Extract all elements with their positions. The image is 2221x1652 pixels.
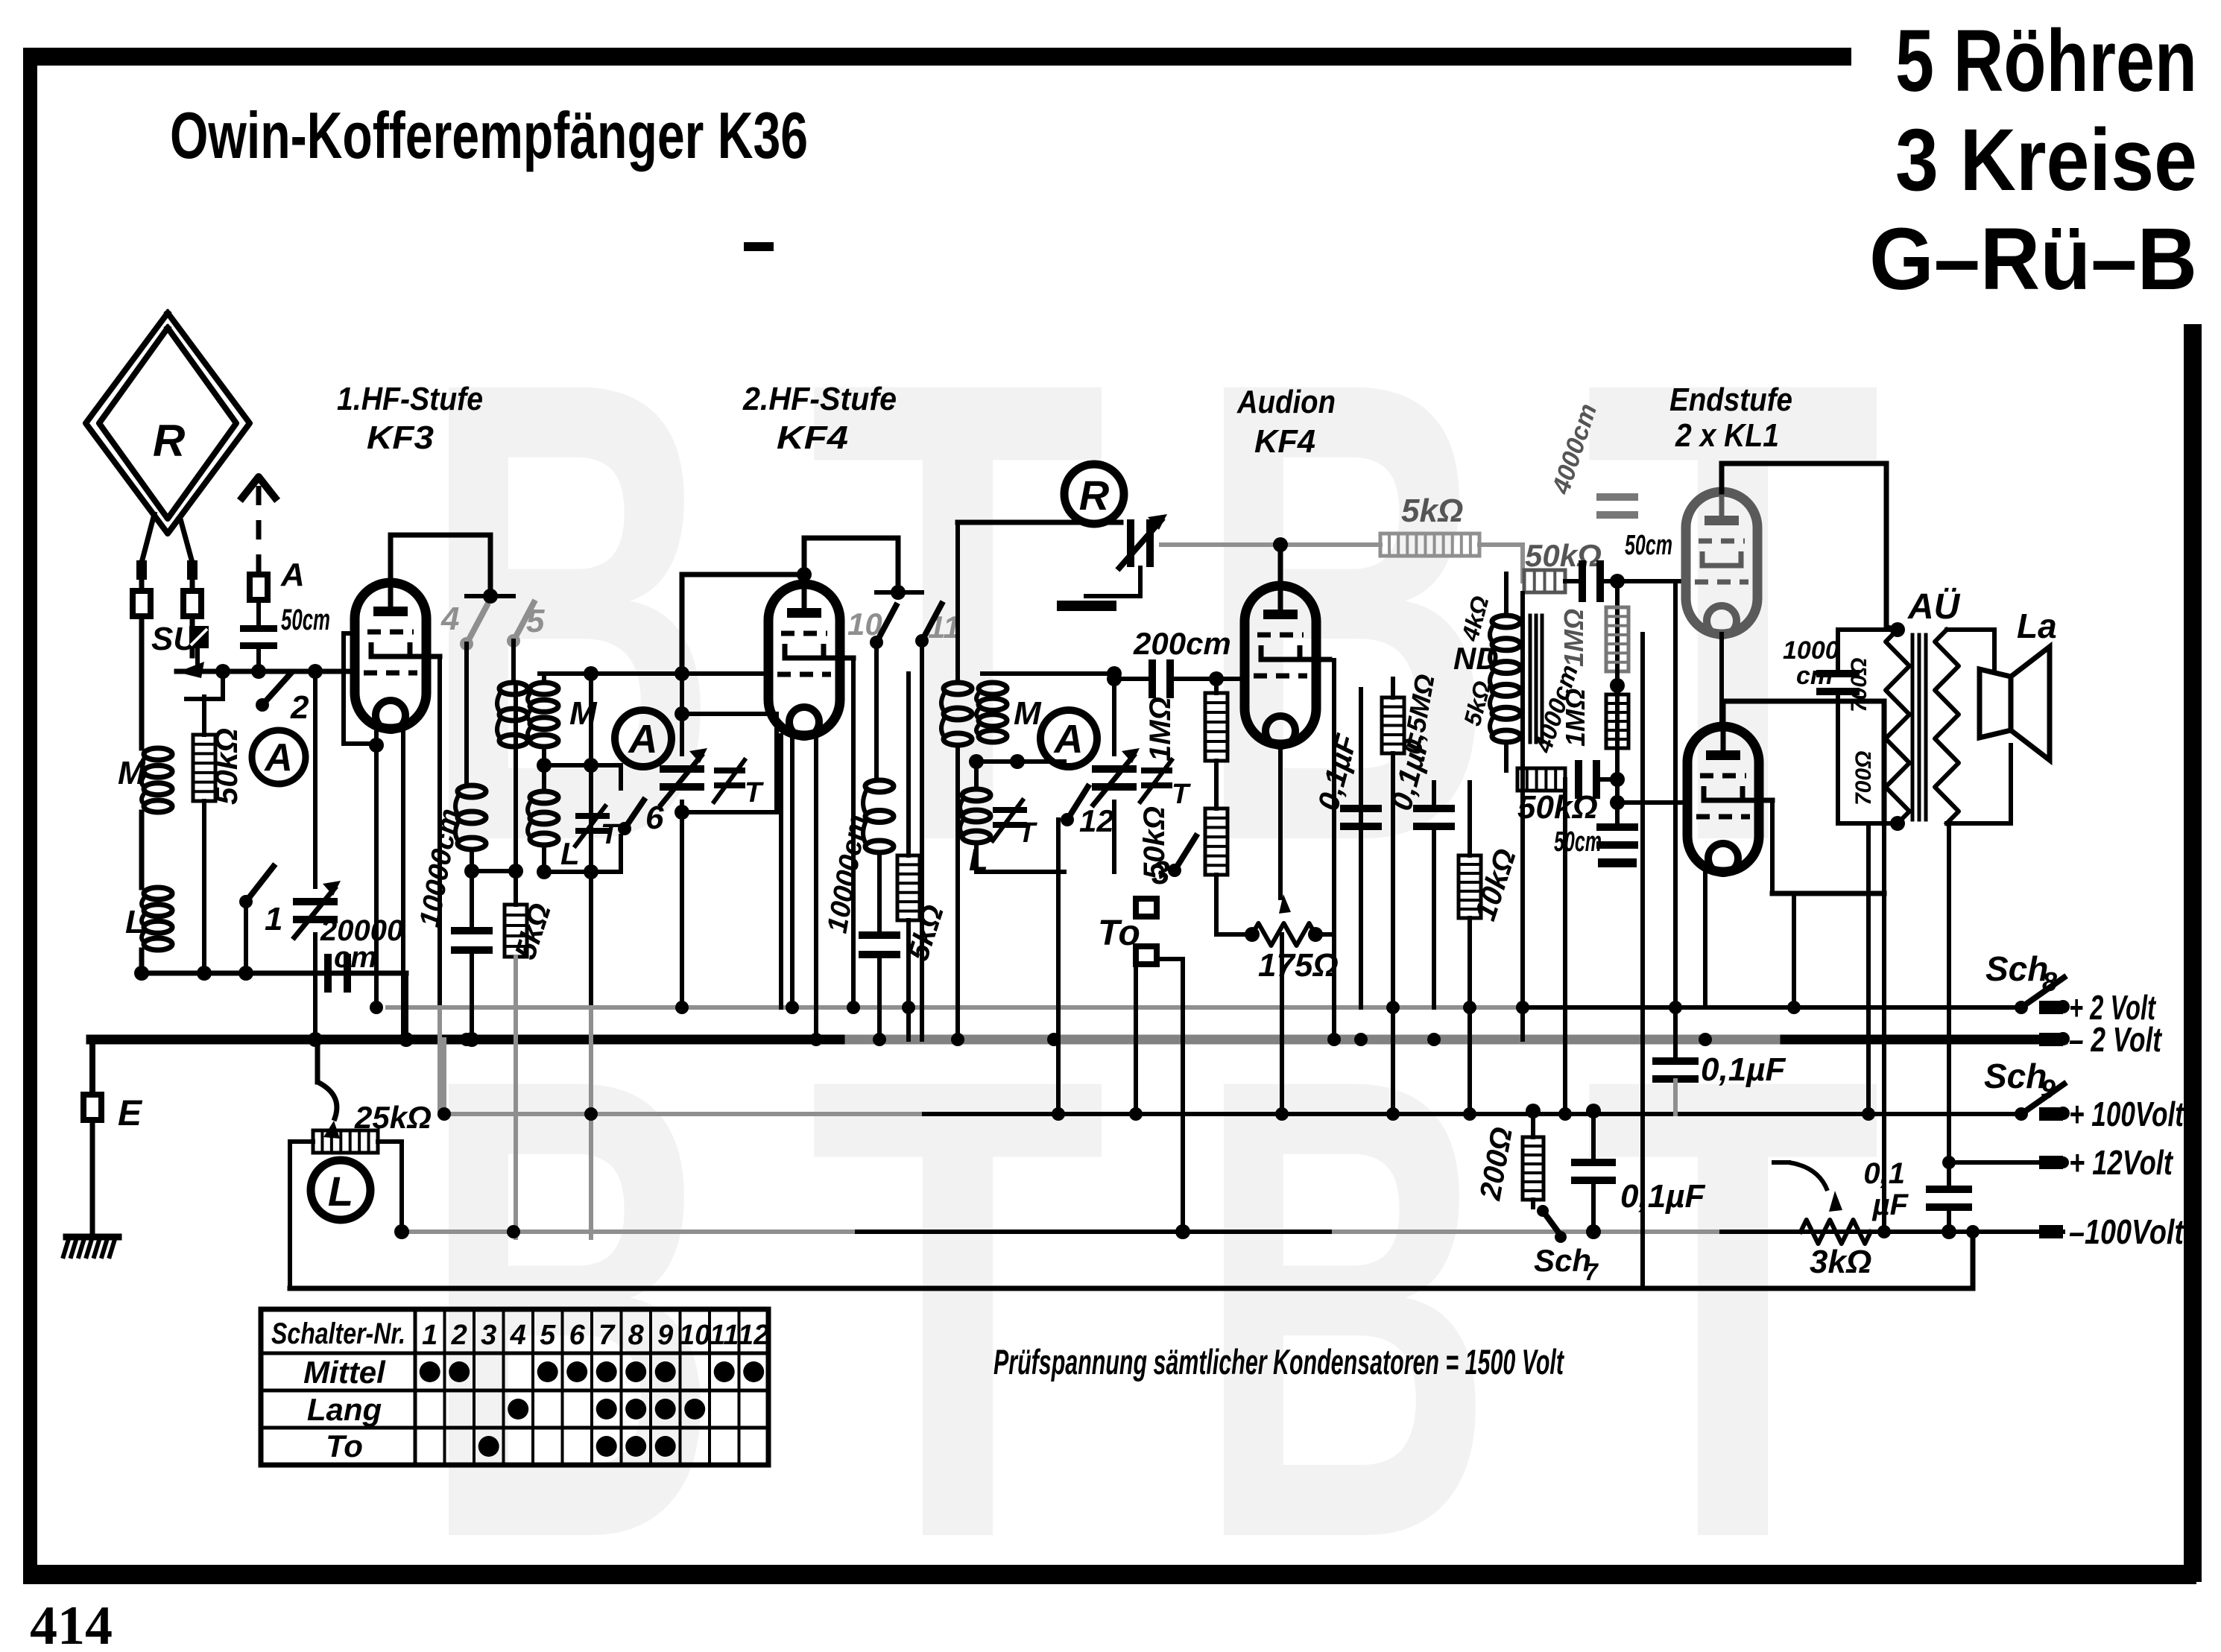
svg-text:To: To (1098, 914, 1140, 953)
svg-text:6: 6 (569, 1320, 586, 1351)
svg-text:50kΩ: 50kΩ (209, 728, 244, 805)
svg-text:Audion: Audion (1236, 384, 1336, 420)
svg-text:Sch: Sch (1984, 1057, 2047, 1095)
svg-text:M: M (118, 755, 146, 791)
svg-text:Endstufe: Endstufe (1669, 382, 1792, 418)
svg-text:9: 9 (2041, 1074, 2056, 1104)
svg-text:2: 2 (451, 1320, 467, 1351)
svg-text:M: M (1014, 695, 1042, 732)
svg-text:9: 9 (657, 1320, 673, 1351)
svg-text:A: A (263, 736, 293, 779)
svg-text:11: 11 (710, 1320, 739, 1351)
svg-text:700Ω: 700Ω (1847, 658, 1871, 712)
svg-text:La: La (2017, 607, 2057, 645)
svg-text:Prüfspannung sämtlicher Konden: Prüfspannung sämtlicher Kondensatoren = … (993, 1342, 1565, 1382)
svg-text:1MΩ: 1MΩ (1144, 697, 1177, 762)
svg-text:2.HF-Stufe: 2.HF-Stufe (742, 381, 897, 417)
svg-text:50kΩ: 50kΩ (1525, 538, 1602, 573)
svg-text:B: B (1196, 942, 1494, 1648)
svg-text:0,1: 0,1 (1863, 1157, 1905, 1190)
svg-text:KF3: KF3 (367, 420, 434, 456)
svg-text:–100Volt: –100Volt (2069, 1212, 2184, 1251)
svg-text:50cm: 50cm (1554, 826, 1602, 858)
svg-text:G–Rü–B: G–Rü–B (1869, 210, 2197, 308)
svg-text:B: B (421, 942, 719, 1648)
svg-text:10: 10 (679, 1320, 710, 1351)
svg-text:200cm: 200cm (1133, 626, 1231, 661)
svg-text:µF: µF (1872, 1189, 1909, 1221)
svg-text:1: 1 (422, 1320, 437, 1351)
svg-text:– 2 Volt: – 2 Volt (2069, 1020, 2162, 1059)
svg-text:50cm: 50cm (1625, 530, 1672, 561)
svg-text:3: 3 (481, 1320, 496, 1351)
svg-text:2: 2 (290, 689, 309, 726)
svg-text:To: To (326, 1428, 363, 1463)
svg-text:KF4: KF4 (777, 420, 848, 456)
svg-text:T: T (809, 942, 1107, 1648)
svg-text:Schalter-Nr.: Schalter-Nr. (271, 1317, 405, 1350)
svg-text:Sch: Sch (1985, 949, 2048, 988)
svg-text:7: 7 (598, 1320, 616, 1351)
svg-text:A: A (1053, 717, 1084, 762)
svg-text:4: 4 (440, 601, 459, 637)
svg-text:3: 3 (1151, 855, 1169, 891)
svg-text:3 Kreise: 3 Kreise (1895, 111, 2197, 209)
svg-text:5kΩ: 5kΩ (1401, 493, 1463, 529)
svg-text:+ 12Volt: + 12Volt (2069, 1143, 2173, 1182)
svg-text:KF4: KF4 (1254, 423, 1315, 460)
svg-text:B: B (1196, 245, 1494, 978)
svg-text:7: 7 (1585, 1259, 1599, 1285)
svg-text:4: 4 (510, 1320, 526, 1351)
svg-text:5 Röhren: 5 Röhren (1895, 12, 2197, 110)
svg-text:L: L (328, 1168, 353, 1215)
svg-text:ND: ND (1453, 641, 1499, 676)
svg-text:1: 1 (265, 901, 282, 937)
svg-text:T: T (1584, 942, 1882, 1648)
svg-text:R: R (1079, 472, 1110, 519)
svg-text:12: 12 (738, 1320, 769, 1351)
svg-text:1MΩ: 1MΩ (1558, 609, 1589, 667)
svg-text:0,1µF: 0,1µF (1701, 1051, 1786, 1088)
svg-text:Lang: Lang (307, 1392, 382, 1427)
svg-text:2 x KL1: 2 x KL1 (1675, 417, 1779, 454)
svg-text:0,1µF: 0,1µF (1620, 1178, 1706, 1215)
svg-text:E: E (118, 1094, 143, 1133)
svg-text:Sch: Sch (1534, 1243, 1591, 1278)
svg-text:12: 12 (1079, 803, 1114, 838)
svg-text:700Ω: 700Ω (1851, 751, 1876, 806)
svg-text:1MΩ: 1MΩ (1560, 689, 1590, 747)
svg-text:8: 8 (2042, 966, 2057, 997)
svg-text:R: R (153, 416, 185, 466)
svg-text:1.HF-Stufe: 1.HF-Stufe (337, 381, 483, 417)
svg-text:M: M (569, 695, 598, 732)
svg-text:50kΩ: 50kΩ (1517, 789, 1598, 826)
svg-text:T: T (1172, 779, 1191, 810)
svg-text:AÜ: AÜ (1907, 587, 1961, 627)
svg-text:1000: 1000 (1783, 636, 1839, 665)
svg-text:5: 5 (540, 1320, 556, 1351)
svg-text:L: L (125, 904, 145, 940)
svg-text:T: T (745, 777, 764, 808)
svg-text:A: A (280, 557, 305, 593)
svg-text:Mittel: Mittel (303, 1355, 386, 1390)
svg-text:3kΩ: 3kΩ (1810, 1244, 1871, 1280)
svg-text:cm: cm (334, 941, 377, 974)
svg-text:414: 414 (30, 1595, 113, 1648)
svg-text:175Ω: 175Ω (1258, 947, 1339, 984)
svg-text:A: A (628, 717, 658, 762)
svg-text:8: 8 (628, 1320, 645, 1351)
svg-text:+ 100Volt: + 100Volt (2069, 1095, 2184, 1133)
svg-text:T: T (601, 819, 620, 850)
svg-text:T: T (1018, 817, 1037, 849)
svg-text:Owin-Kofferempfänger K36: Owin-Kofferempfänger K36 (170, 98, 808, 172)
svg-text:50cm: 50cm (281, 604, 330, 636)
